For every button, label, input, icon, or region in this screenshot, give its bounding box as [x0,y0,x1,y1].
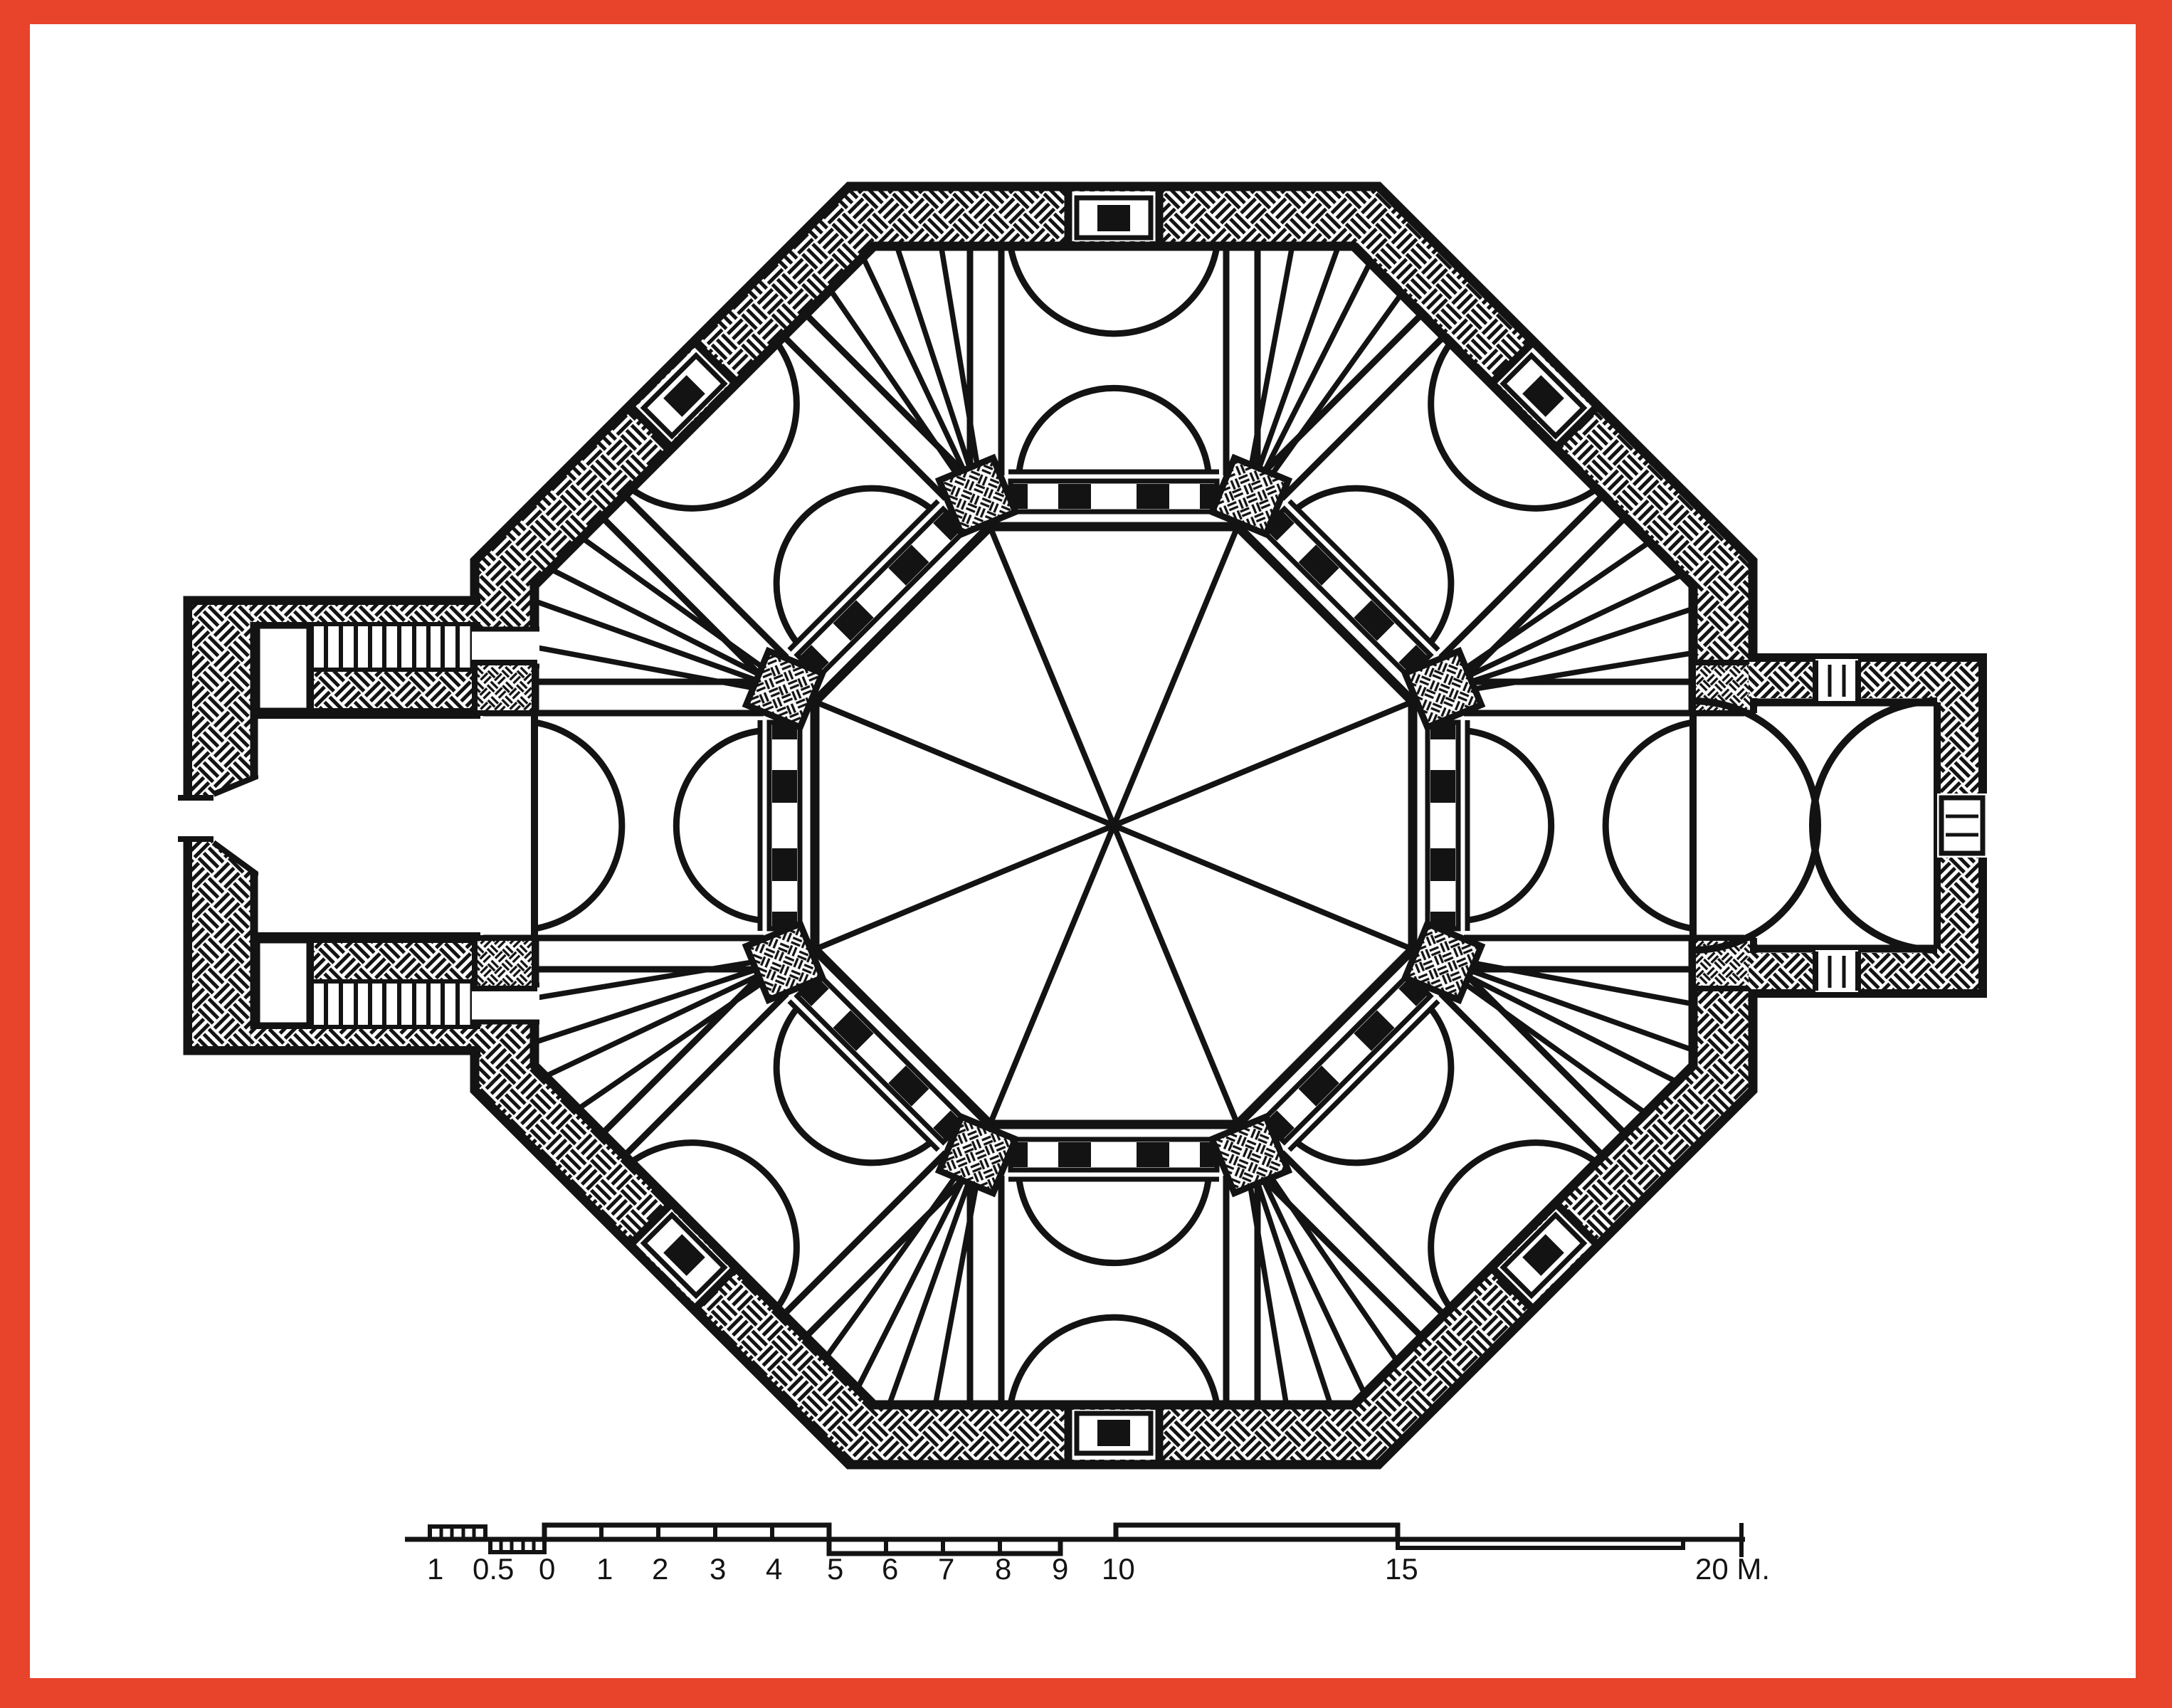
svg-text:8: 8 [995,1552,1011,1586]
svg-text:1: 1 [427,1552,443,1586]
svg-text:3: 3 [710,1552,726,1586]
svg-text:10: 10 [1102,1552,1135,1586]
svg-text:2: 2 [652,1552,668,1586]
svg-text:5: 5 [827,1552,843,1586]
svg-text:0.5: 0.5 [473,1552,514,1586]
svg-text:15: 15 [1385,1552,1418,1586]
svg-text:7: 7 [938,1552,954,1586]
svg-text:1: 1 [596,1552,613,1586]
svg-text:20 M.: 20 M. [1695,1552,1770,1586]
svg-text:0: 0 [539,1552,555,1586]
svg-text:4: 4 [766,1552,782,1586]
svg-text:6: 6 [882,1552,898,1586]
svg-text:9: 9 [1052,1552,1068,1586]
